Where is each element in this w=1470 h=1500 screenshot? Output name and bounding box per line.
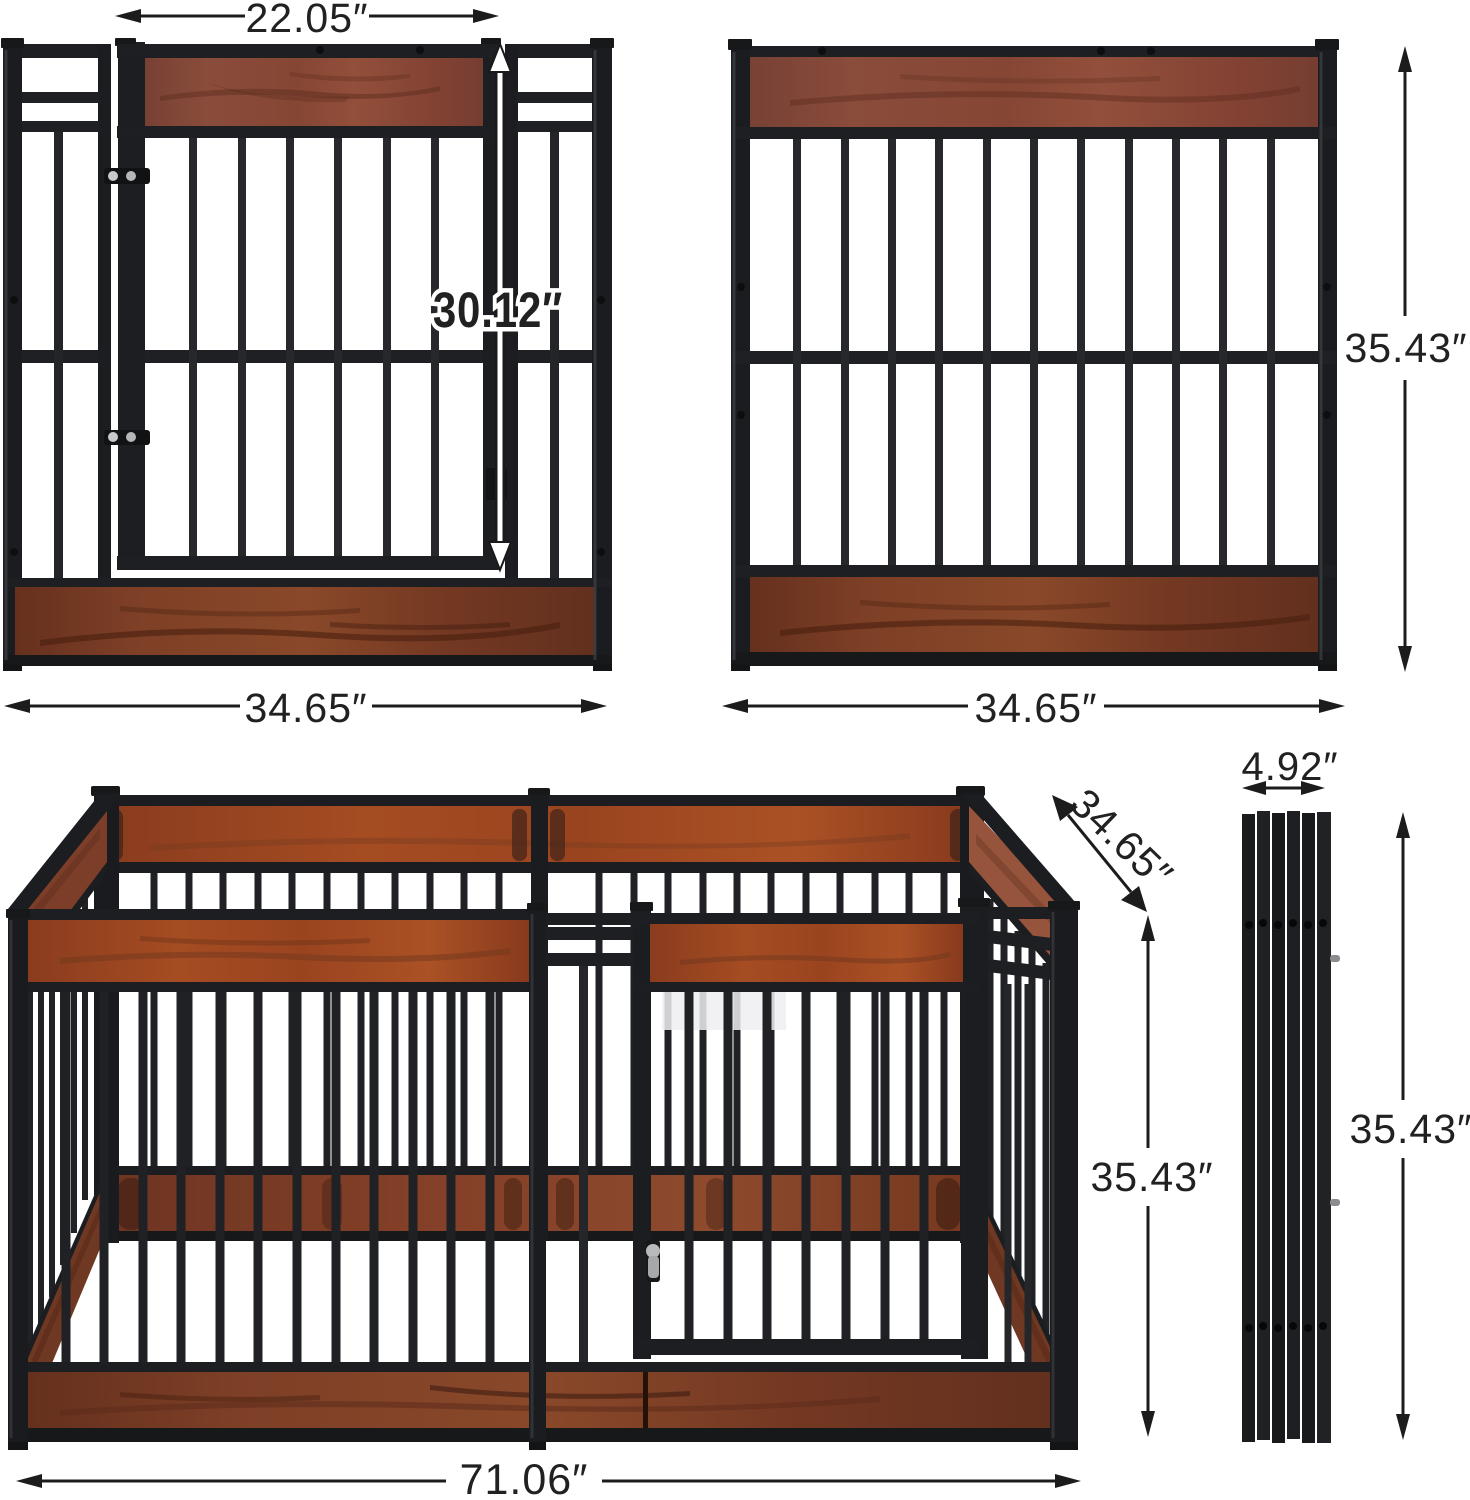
svg-text:22.05″: 22.05″ [245, 0, 368, 41]
svg-text:4.92″: 4.92″ [1241, 745, 1338, 789]
svg-text:35.43″: 35.43″ [1349, 1106, 1470, 1152]
svg-text:30.12″: 30.12″ [433, 282, 563, 338]
svg-text:34.65″: 34.65″ [974, 685, 1097, 731]
svg-text:35.43″: 35.43″ [1344, 325, 1467, 371]
svg-text:34.65″: 34.65″ [244, 685, 367, 731]
svg-text:71.06″: 71.06″ [460, 1456, 589, 1500]
svg-text:35.43″: 35.43″ [1090, 1154, 1213, 1200]
